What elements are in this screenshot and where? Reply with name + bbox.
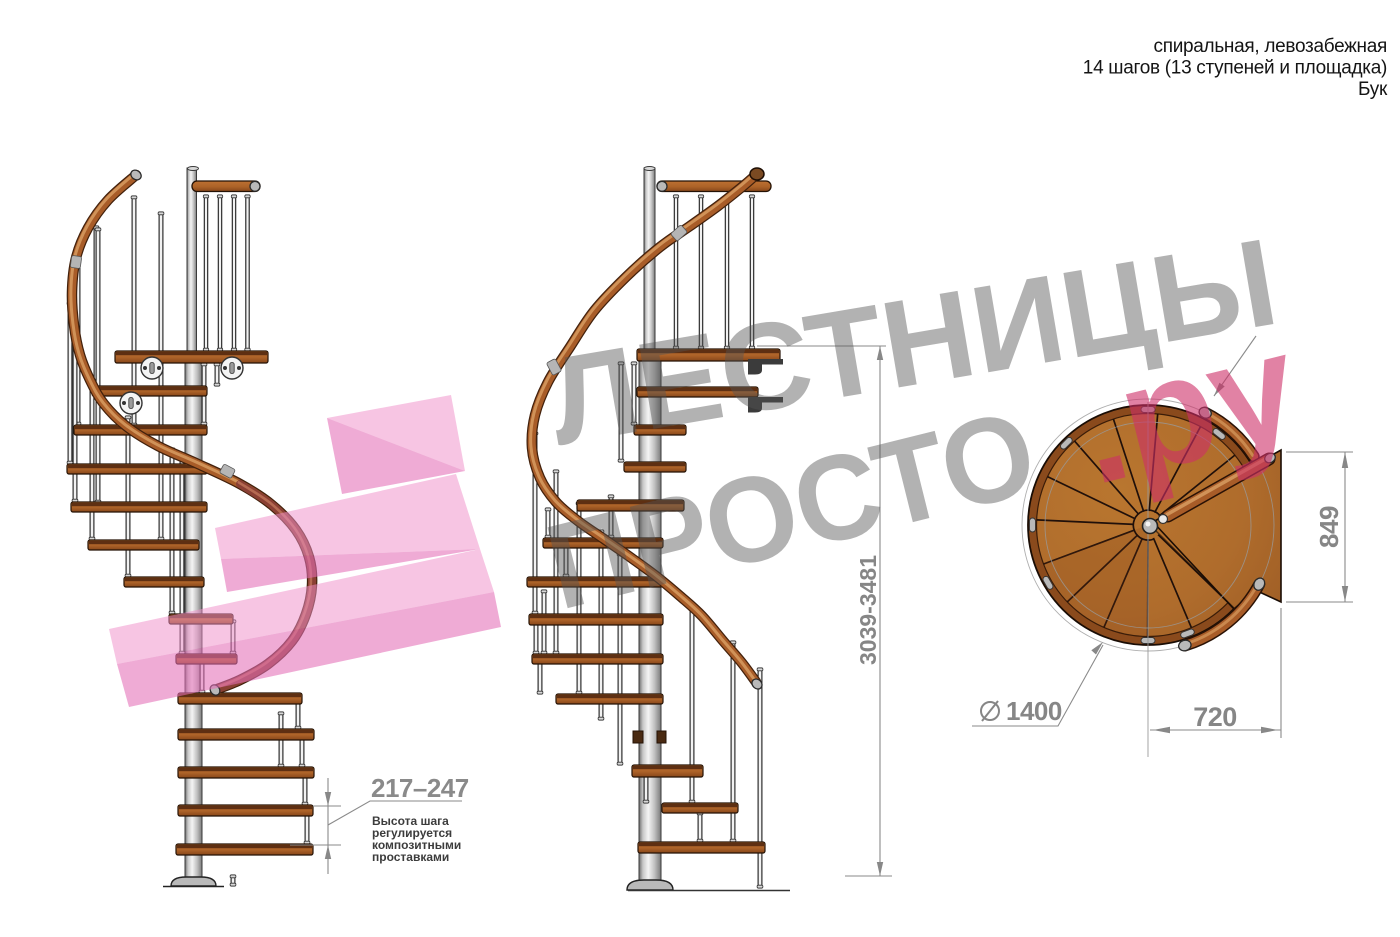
svg-text:спиральная, левозабежная: спиральная, левозабежная xyxy=(1154,36,1387,57)
svg-text:849: 849 xyxy=(1314,506,1344,548)
svg-text:3039-3481: 3039-3481 xyxy=(855,555,881,665)
svg-text:14 шагов (13 ступеней и площад: 14 шагов (13 ступеней и площадка) xyxy=(1083,58,1387,79)
svg-text:720: 720 xyxy=(1193,702,1237,732)
svg-text:Бук: Бук xyxy=(1358,79,1388,100)
svg-text:1400: 1400 xyxy=(1006,696,1062,726)
svg-text:217–247: 217–247 xyxy=(371,773,469,803)
svg-text:проставками: проставками xyxy=(372,850,449,864)
